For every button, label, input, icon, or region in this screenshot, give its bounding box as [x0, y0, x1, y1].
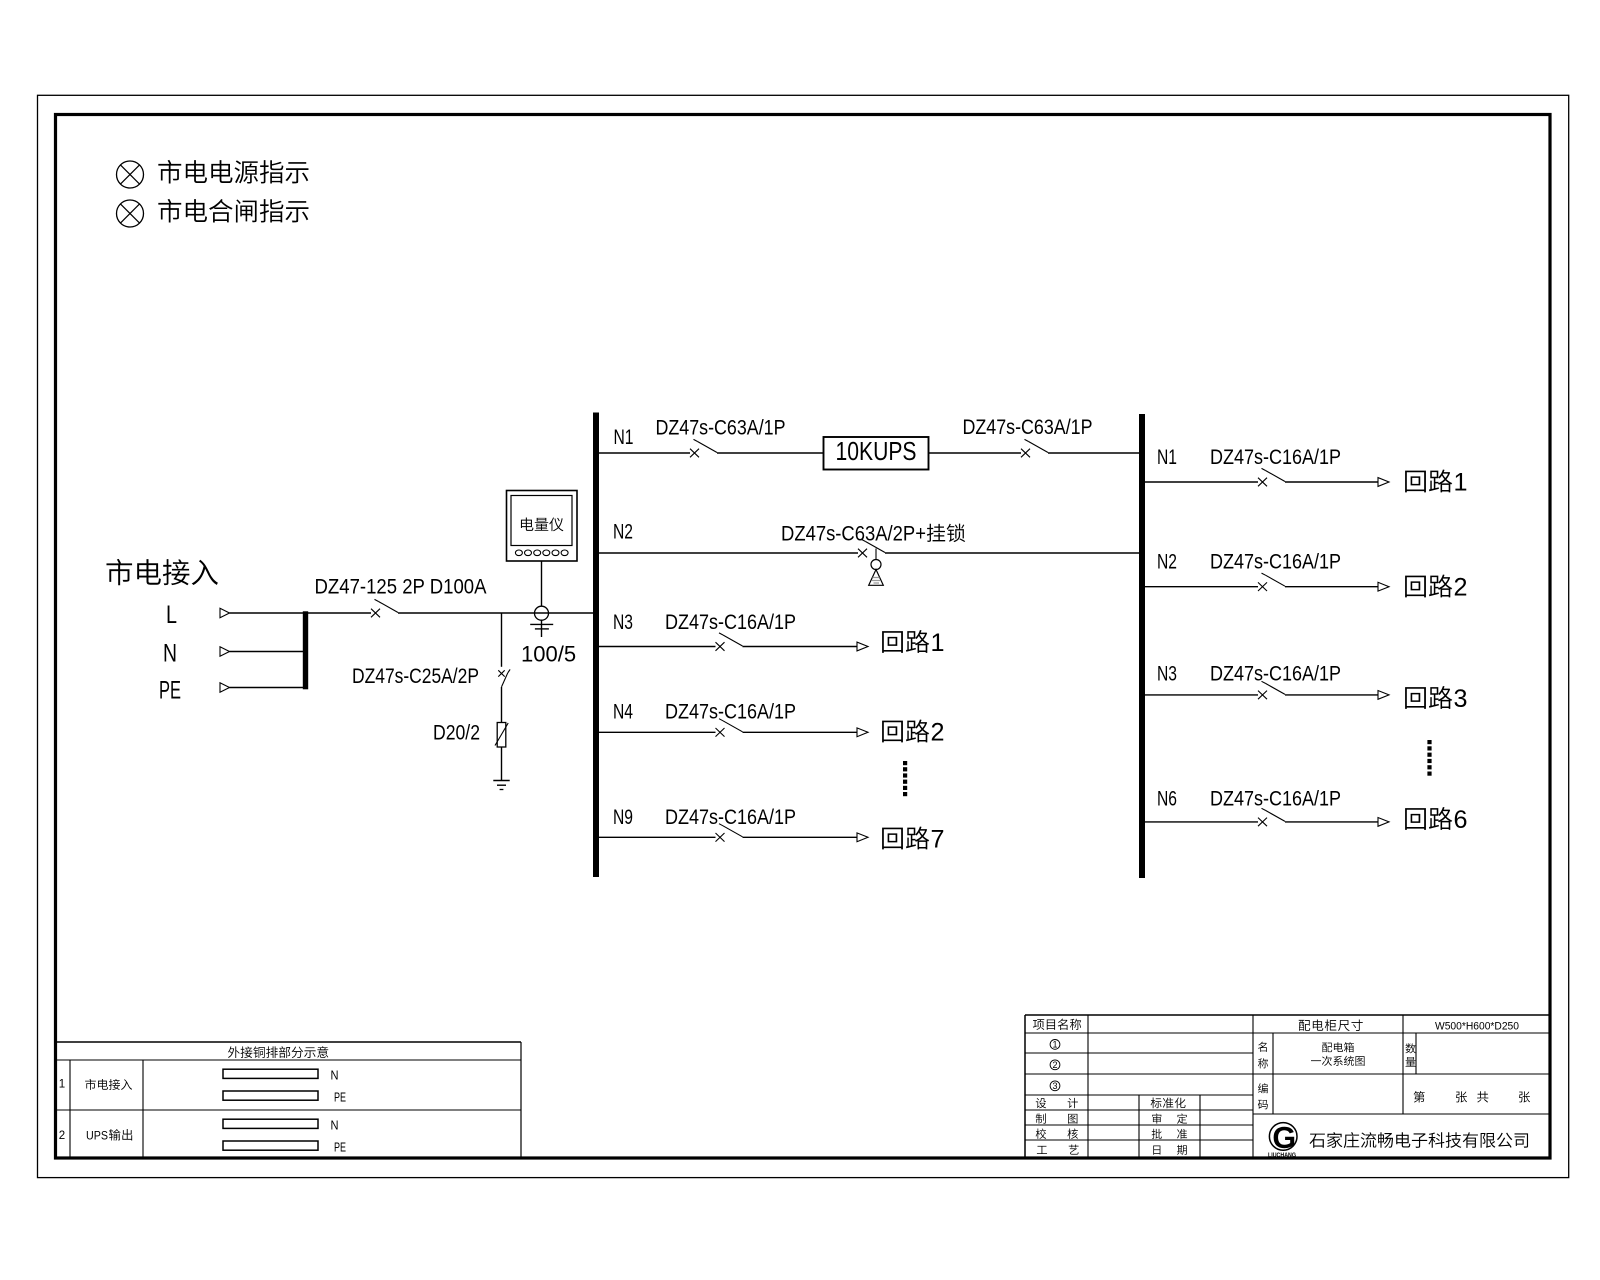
svg-text:1: 1	[931, 629, 945, 657]
svg-text:N3: N3	[613, 611, 633, 634]
svg-text:2: 2	[1454, 574, 1468, 602]
svg-text:G: G	[1272, 1121, 1296, 1155]
svg-text:2: 2	[1052, 1060, 1057, 1070]
svg-text:DZ47s-C16A/1P: DZ47s-C16A/1P	[665, 701, 796, 724]
svg-text:N: N	[163, 640, 177, 668]
svg-text:DZ47s-C16A/1P: DZ47s-C16A/1P	[1210, 663, 1341, 686]
svg-text:W500*H600*D250: W500*H600*D250	[1435, 1021, 1519, 1033]
svg-text:N9: N9	[613, 806, 633, 829]
svg-text:N: N	[331, 1068, 339, 1083]
svg-text:3: 3	[1052, 1081, 1057, 1091]
svg-text:PE: PE	[159, 677, 181, 705]
svg-text:6: 6	[1454, 806, 1468, 834]
svg-text:DZ47s-C16A/1P: DZ47s-C16A/1P	[665, 806, 796, 829]
svg-text:N3: N3	[1157, 663, 1177, 686]
svg-text:N1: N1	[1157, 446, 1177, 469]
svg-text:N2: N2	[1157, 551, 1177, 574]
svg-text:DZ47s-C63A/1P: DZ47s-C63A/1P	[656, 417, 786, 440]
svg-text:UPS: UPS	[86, 1129, 108, 1143]
svg-text:DZ47s-C16A/1P: DZ47s-C16A/1P	[1210, 788, 1341, 811]
svg-text:DZ47s-C16A/1P: DZ47s-C16A/1P	[1210, 446, 1341, 469]
svg-text:2: 2	[59, 1130, 65, 1142]
svg-text:1: 1	[59, 1079, 65, 1091]
svg-text:1: 1	[1052, 1040, 1057, 1050]
svg-text:DZ47s-C63A/2P+: DZ47s-C63A/2P+	[781, 523, 926, 546]
svg-text:L: L	[166, 601, 177, 629]
svg-text:PE: PE	[334, 1140, 346, 1155]
svg-text:DZ47-125 2P D100A: DZ47-125 2P D100A	[315, 576, 487, 599]
svg-text:N1: N1	[614, 426, 634, 449]
svg-text:PE: PE	[334, 1090, 346, 1105]
svg-text:DZ47s-C25A/2P: DZ47s-C25A/2P	[352, 665, 479, 688]
svg-text:3: 3	[1454, 685, 1468, 713]
svg-text:DZ47s-C16A/1P: DZ47s-C16A/1P	[1210, 551, 1341, 574]
svg-text:N: N	[331, 1118, 339, 1133]
svg-text:D20/2: D20/2	[433, 722, 480, 745]
svg-text:100/5: 100/5	[521, 642, 576, 667]
svg-text:DZ47s-C63A/1P: DZ47s-C63A/1P	[963, 416, 1093, 439]
svg-text:LIUCHANG: LIUCHANG	[1268, 1152, 1296, 1159]
svg-text:N6: N6	[1157, 788, 1177, 811]
svg-text:7: 7	[931, 826, 945, 854]
svg-text:1: 1	[1454, 469, 1468, 497]
svg-text:10KUPS: 10KUPS	[836, 436, 917, 466]
svg-text:DZ47s-C16A/1P: DZ47s-C16A/1P	[665, 611, 796, 634]
svg-text:N2: N2	[613, 521, 633, 544]
svg-text:2: 2	[931, 719, 945, 747]
svg-text:N4: N4	[613, 701, 633, 724]
